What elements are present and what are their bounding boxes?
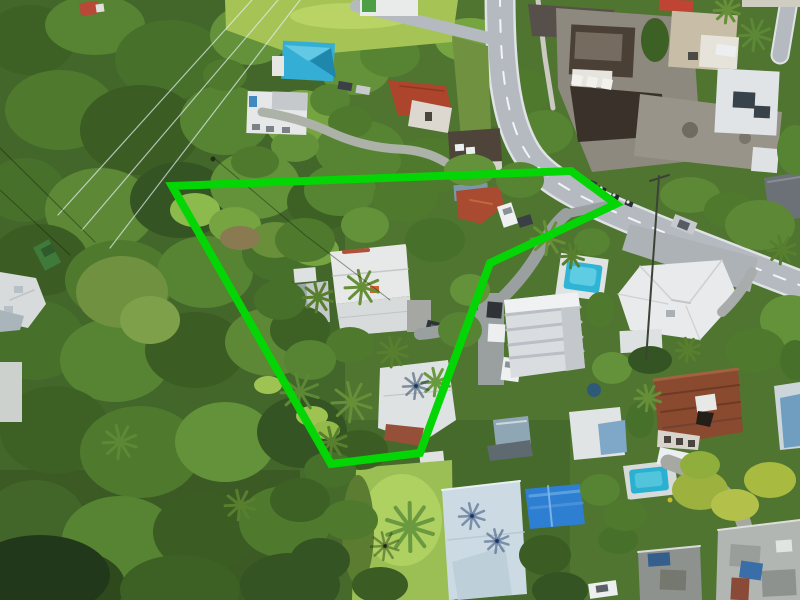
red-brown-structure: [730, 578, 749, 600]
tree-canopy-yellow: [711, 489, 759, 521]
tree-canopy: [341, 207, 389, 243]
dark-car: [486, 301, 502, 318]
tree-canopy: [203, 59, 247, 91]
white-structure: [95, 3, 104, 12]
awning: [586, 76, 598, 88]
gable-window: [425, 112, 432, 121]
tree-canopy: [270, 478, 330, 522]
shed-blue-patch: [598, 420, 627, 455]
building-window: [282, 127, 290, 133]
patio-item: [668, 498, 673, 503]
hedge: [641, 18, 669, 62]
ac-unit: [466, 147, 475, 155]
tree-canopy: [290, 538, 350, 582]
solar-water-heater: [739, 561, 763, 581]
white-rooftop-unit: [776, 539, 793, 552]
awning: [601, 78, 613, 90]
facade-window: [676, 438, 683, 445]
tree-canopy: [519, 535, 571, 575]
water-barrel: [587, 383, 601, 397]
tree-canopy: [628, 346, 672, 374]
tree-canopy-yellow: [680, 451, 720, 479]
skylight: [666, 310, 675, 317]
tree-canopy: [201, 112, 249, 148]
tree-canopy: [405, 218, 465, 262]
tree-canopy: [275, 218, 335, 262]
corner-road: [780, 0, 790, 55]
roof-structure-white: [695, 394, 717, 413]
pool-water-light: [569, 265, 597, 286]
ac-unit: [455, 144, 464, 152]
aerial-photo: [0, 0, 800, 600]
tree-canopy: [592, 352, 632, 384]
clearing: [120, 296, 180, 344]
tree-canopy: [444, 154, 496, 186]
tree-canopy-yellow: [744, 462, 796, 498]
red-structure: [79, 1, 99, 16]
scooter-rider: [626, 200, 629, 203]
blue-awning: [249, 96, 257, 107]
solar-panel: [754, 106, 771, 119]
awning: [571, 74, 583, 86]
tree-canopy: [271, 130, 319, 162]
tree-canopy: [284, 340, 336, 380]
modern-building-panel: [574, 32, 622, 61]
roof-red-strip: [344, 250, 368, 252]
scooter-rider: [612, 193, 615, 196]
solar-water-heater: [648, 552, 671, 567]
boulder: [682, 122, 698, 138]
tree-canopy: [231, 146, 279, 178]
concrete-patch: [761, 569, 796, 597]
tan-house-window: [688, 52, 698, 60]
tree-canopy: [725, 328, 785, 372]
tree-canopy: [598, 526, 638, 554]
tree-canopy: [254, 280, 306, 320]
facade-window: [664, 436, 671, 443]
white-car: [488, 324, 506, 343]
facade-window: [688, 440, 695, 447]
blue-house-terrace: [272, 56, 284, 76]
tree-canopy: [322, 500, 378, 540]
top-wall: [742, 0, 800, 7]
solar-panel: [733, 91, 756, 108]
aerial-photo-container: [0, 0, 800, 600]
red-roof-sliver: [659, 0, 693, 12]
left-structure: [0, 362, 22, 422]
utility-pole: [211, 157, 216, 162]
tree-canopy: [603, 499, 647, 531]
concrete-patch: [660, 570, 687, 591]
small-roof: [293, 267, 316, 283]
tree-canopy: [496, 162, 544, 198]
building-window: [266, 126, 274, 132]
green-shed: [362, 0, 376, 12]
dirt-patch: [220, 226, 260, 250]
tree-canopy: [586, 292, 614, 328]
skylight: [14, 286, 23, 293]
pool-water-light: [634, 471, 662, 489]
garage-roof: [751, 147, 779, 173]
building-window: [252, 124, 260, 130]
white-building-upper: [272, 91, 308, 110]
